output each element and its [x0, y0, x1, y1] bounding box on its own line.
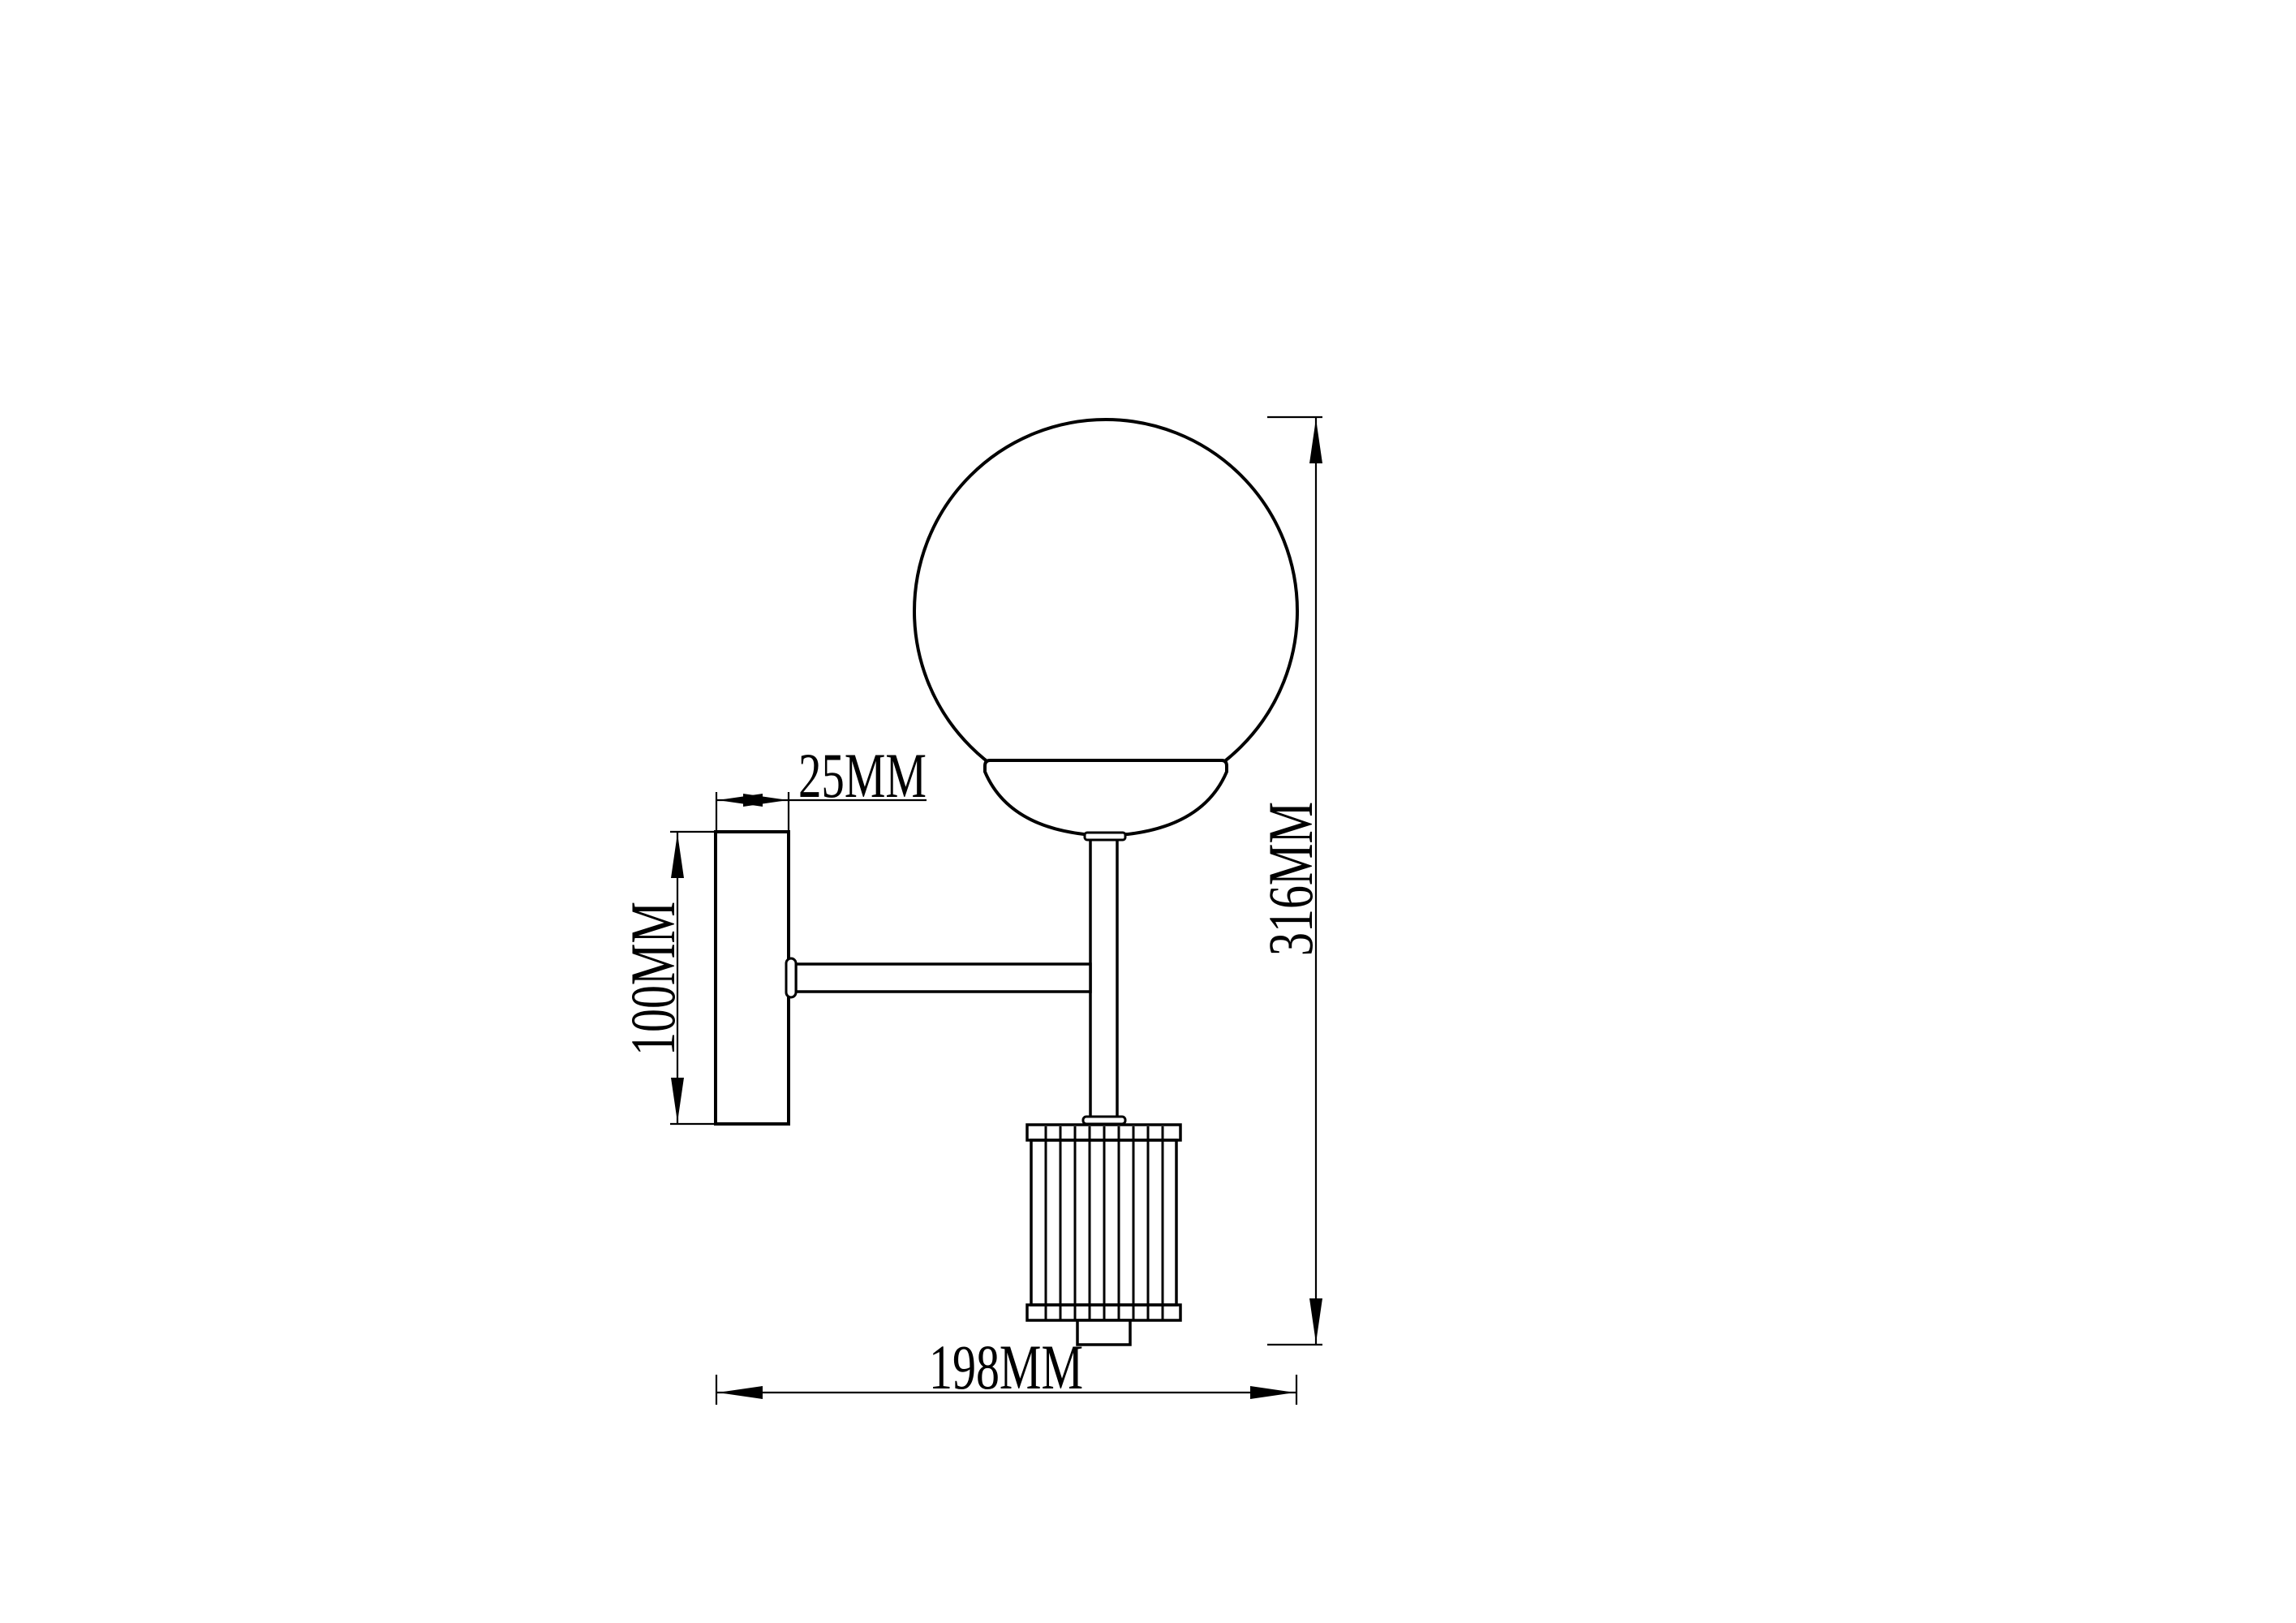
stem-collar-top: [1085, 833, 1125, 840]
dim-316mm-arrow-bottom: [1309, 1298, 1322, 1343]
wall-backplate: [716, 832, 789, 1124]
dim-25mm-arrow-right: [743, 794, 788, 807]
dim-316mm-label: 316MM: [1255, 802, 1326, 956]
stem-collar-bottom: [1083, 1117, 1125, 1124]
arm-flange: [786, 958, 796, 997]
cylinder-ribs: [1046, 1126, 1163, 1319]
stem: [1090, 839, 1117, 1118]
dim-100mm-arrow-top: [671, 833, 684, 878]
dim-25mm-label: 25MM: [798, 740, 927, 811]
drawing-canvas: 25MM 100MM 316MM 198MM: [0, 0, 2296, 1623]
globe-shade-outline: [914, 420, 1297, 803]
dim-316mm-arrow-top: [1309, 419, 1322, 463]
dim-198mm-label: 198MM: [929, 1332, 1083, 1402]
bottom-connector-tab: [1077, 1320, 1130, 1345]
globe-fitter-cup: [985, 760, 1227, 834]
lamp-figure: [716, 420, 1297, 1345]
dim-100mm-arrow-bottom: [671, 1078, 684, 1122]
dim-198mm-arrow-left: [718, 1386, 763, 1399]
dim-100mm-label: 100MM: [617, 902, 688, 1056]
dim-198mm-arrow-right: [1250, 1386, 1295, 1399]
mounting-arm: [796, 964, 1090, 992]
